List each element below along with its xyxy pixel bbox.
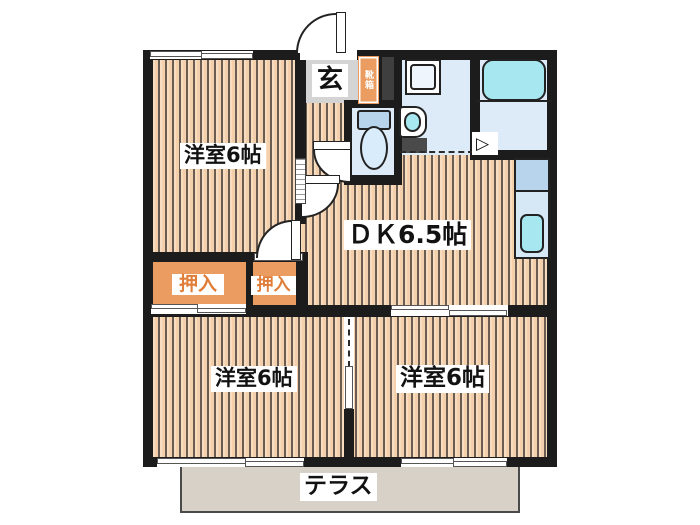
wall-closet-right bbox=[296, 262, 308, 308]
dk-door-leaf bbox=[302, 175, 340, 184]
washing-machine bbox=[410, 64, 436, 90]
closet-right-label: 押入 bbox=[251, 276, 296, 295]
wall-room-tl-right bbox=[295, 50, 306, 162]
dk-br-door-sash-2 bbox=[449, 310, 507, 316]
toilet-bowl bbox=[360, 126, 388, 170]
toilet-door-leaf bbox=[313, 141, 351, 150]
window-bl-sash-1 bbox=[157, 458, 246, 464]
closet-door-sash-2 bbox=[197, 308, 246, 313]
terrace-label: テラス bbox=[300, 473, 377, 501]
bl-br-divider-track bbox=[348, 319, 350, 367]
bathtub bbox=[482, 59, 546, 101]
wall-bl-br-divider-lower bbox=[344, 408, 354, 457]
shoe-cabinet-label: 靴箱 bbox=[362, 70, 375, 90]
washroom-dk-boundary bbox=[400, 151, 474, 153]
closet-left-label: 押入 bbox=[172, 274, 224, 295]
wall-toilet-bottom bbox=[344, 175, 402, 185]
bath-folding-door-icon: ▷ bbox=[476, 136, 489, 153]
room-bottom-left-label: 洋室6帖 bbox=[211, 366, 297, 392]
window-bl-sash-2 bbox=[245, 461, 304, 467]
closet-door-sash-1 bbox=[151, 304, 198, 309]
shoe-cabinet: 靴箱 bbox=[358, 56, 379, 104]
window-br-sash-2 bbox=[453, 461, 507, 467]
bl-br-divider-leaf bbox=[345, 366, 353, 409]
window-top-sash-2 bbox=[201, 53, 253, 59]
entrance-door-leaf bbox=[336, 12, 346, 53]
room-tl-door-track bbox=[295, 158, 306, 204]
room-bottom-right-label: 洋室6帖 bbox=[396, 365, 489, 393]
entrance-door-arc bbox=[296, 13, 336, 53]
room-tl-door-leaf bbox=[291, 220, 301, 260]
window-top-sash-1 bbox=[150, 51, 202, 57]
dk-br-door-sash-1 bbox=[391, 305, 449, 310]
room-top-left-label: 洋室6帖 bbox=[180, 143, 266, 169]
window-br-sash-1 bbox=[401, 458, 454, 464]
washbasin-bowl bbox=[404, 112, 421, 132]
floor-plan: ▷ 洋室6帖 ＤＫ6.5帖 洋室6帖 洋室6帖 玄 靴箱 押入 押入 テラス bbox=[0, 0, 700, 525]
kitchen-upper-unit bbox=[516, 160, 548, 192]
dk-label: ＤＫ6.5帖 bbox=[344, 220, 471, 250]
entrance-label: 玄 bbox=[312, 64, 348, 97]
kitchen-sink bbox=[520, 214, 544, 253]
